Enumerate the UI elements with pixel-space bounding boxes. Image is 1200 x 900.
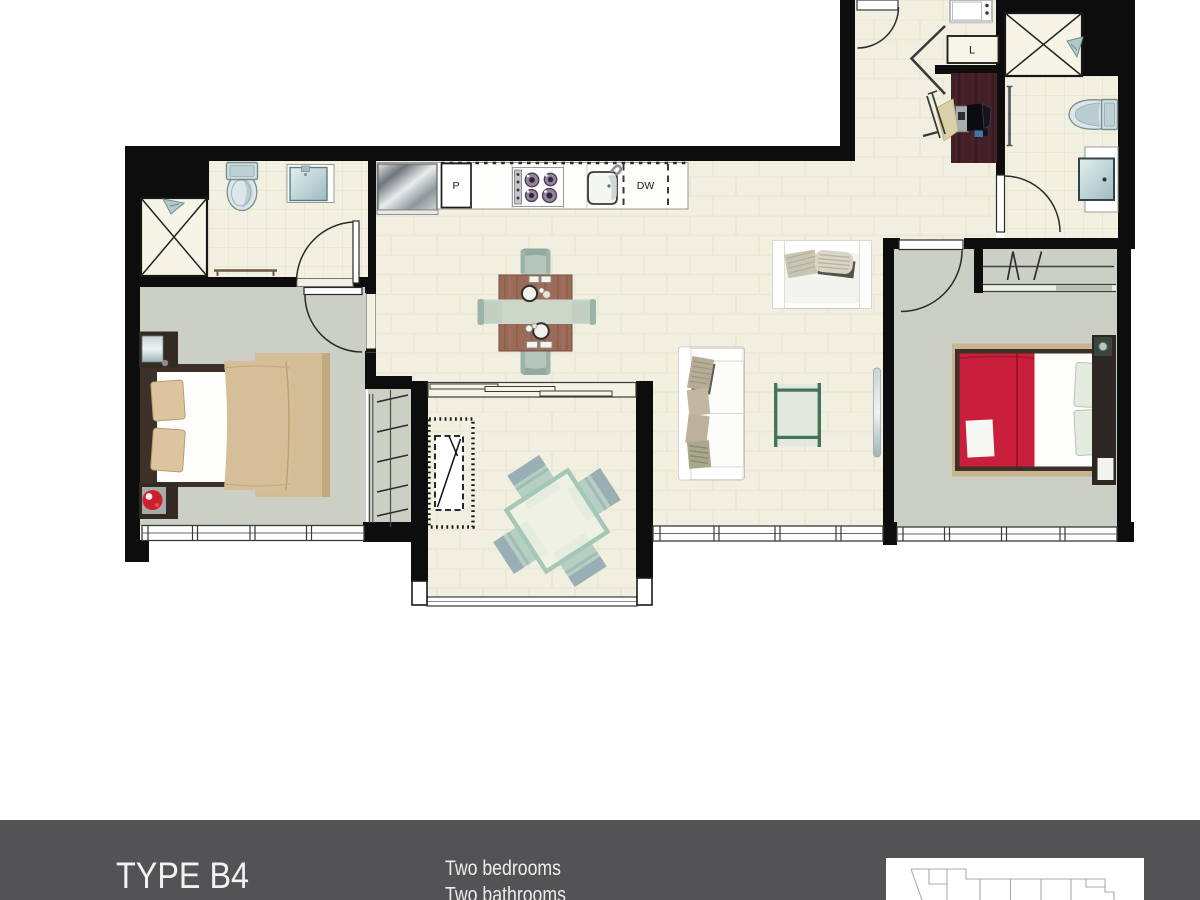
svg-text:Two bedrooms: Two bedrooms: [445, 857, 561, 880]
svg-text:TYPE B4: TYPE B4: [116, 854, 249, 896]
svg-text:P: P: [452, 180, 459, 192]
svg-text:L: L: [969, 45, 975, 57]
svg-text:Two bathrooms: Two bathrooms: [445, 884, 566, 900]
svg-text:DW: DW: [637, 180, 655, 192]
